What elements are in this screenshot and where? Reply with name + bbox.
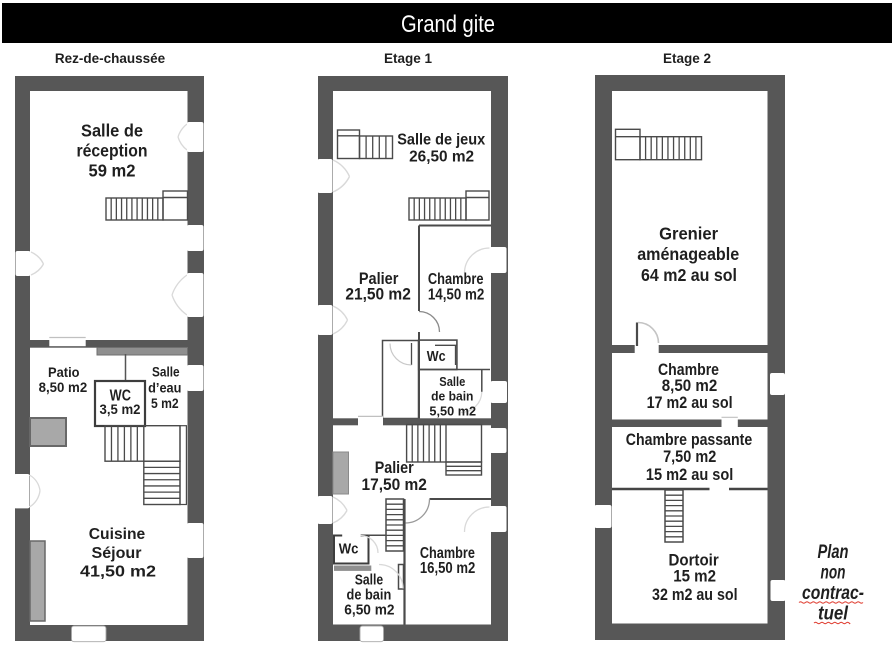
svg-text:16,50 m2: 16,50 m2: [420, 560, 475, 577]
svg-text:Plan: Plan: [818, 542, 849, 563]
svg-text:de bain: de bain: [347, 587, 392, 603]
svg-text:Chambre passante: Chambre passante: [626, 431, 752, 449]
svg-text:8,50 m2: 8,50 m2: [662, 377, 718, 395]
svg-text:Palier: Palier: [375, 459, 414, 477]
svg-text:Grand gite: Grand gite: [401, 11, 495, 38]
svg-text:17,50 m2: 17,50 m2: [362, 476, 427, 494]
svg-text:Salle de jeux: Salle de jeux: [397, 132, 485, 149]
svg-text:59 m2: 59 m2: [89, 161, 136, 181]
svg-text:17 m2 au sol: 17 m2 au sol: [647, 394, 733, 412]
svg-text:réception: réception: [77, 141, 148, 161]
svg-text:Chambre: Chambre: [428, 271, 484, 288]
svg-text:21,50 m2: 21,50 m2: [345, 286, 411, 304]
svg-text:Dortoir: Dortoir: [669, 551, 720, 569]
svg-text:26,50 m2: 26,50 m2: [409, 149, 474, 166]
svg-text:Patio: Patio: [48, 364, 80, 380]
svg-text:Séjour: Séjour: [92, 545, 142, 562]
svg-text:14,50 m2: 14,50 m2: [428, 287, 485, 304]
svg-text:Salle: Salle: [439, 375, 465, 389]
svg-text:aménageable: aménageable: [637, 244, 739, 264]
svg-text:Wc: Wc: [427, 349, 446, 365]
svg-text:41,50 m2: 41,50 m2: [80, 564, 156, 581]
svg-text:15 m2 au sol: 15 m2 au sol: [646, 466, 734, 484]
svg-text:non: non: [821, 563, 846, 584]
svg-text:Wc: Wc: [339, 542, 359, 558]
svg-text:de bain: de bain: [431, 390, 473, 404]
svg-text:6,50 m2: 6,50 m2: [344, 603, 394, 619]
svg-text:Salle: Salle: [152, 363, 180, 379]
svg-text:32 m2 au sol: 32 m2 au sol: [652, 586, 738, 604]
svg-text:Salle de: Salle de: [81, 120, 143, 140]
svg-text:d’eau: d’eau: [148, 379, 181, 395]
svg-text:5,50 m2: 5,50 m2: [429, 404, 476, 418]
svg-text:15 m2: 15 m2: [673, 568, 716, 586]
svg-text:Salle: Salle: [355, 573, 383, 589]
svg-text:Grenier: Grenier: [659, 223, 718, 243]
svg-text:Etage 1: Etage 1: [384, 51, 433, 66]
svg-text:tuel: tuel: [818, 604, 849, 625]
svg-text:contrac-: contrac-: [802, 583, 864, 604]
svg-text:8,50 m2: 8,50 m2: [39, 379, 88, 395]
svg-text:3,5 m2: 3,5 m2: [100, 401, 141, 417]
svg-text:7,50 m2: 7,50 m2: [663, 448, 716, 466]
svg-text:5 m2: 5 m2: [151, 395, 179, 411]
svg-text:Rez-de-chaussée: Rez-de-chaussée: [55, 51, 166, 66]
svg-text:64 m2 au sol: 64 m2 au sol: [641, 265, 737, 285]
svg-text:Cuisine: Cuisine: [89, 526, 146, 543]
svg-text:Etage 2: Etage 2: [663, 51, 711, 66]
